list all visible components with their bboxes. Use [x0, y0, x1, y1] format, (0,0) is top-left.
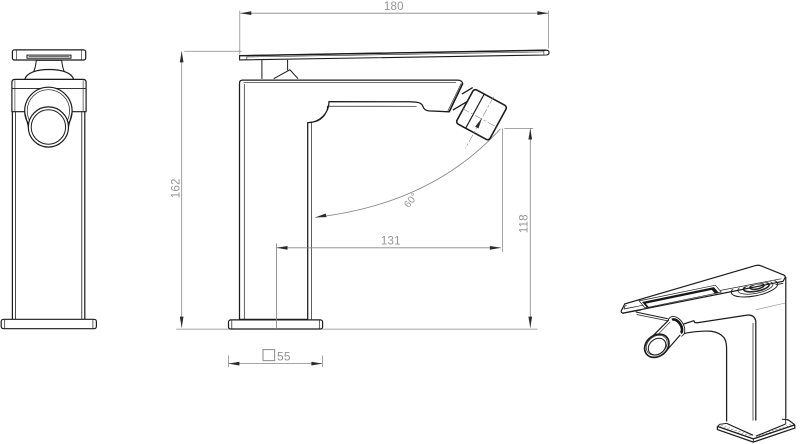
svg-text:131: 131	[381, 235, 401, 247]
svg-text:55: 55	[277, 350, 291, 364]
svg-text:60°: 60°	[402, 191, 420, 210]
svg-text:180: 180	[384, 1, 404, 13]
svg-text:118: 118	[518, 214, 530, 233]
svg-text:162: 162	[171, 178, 183, 198]
